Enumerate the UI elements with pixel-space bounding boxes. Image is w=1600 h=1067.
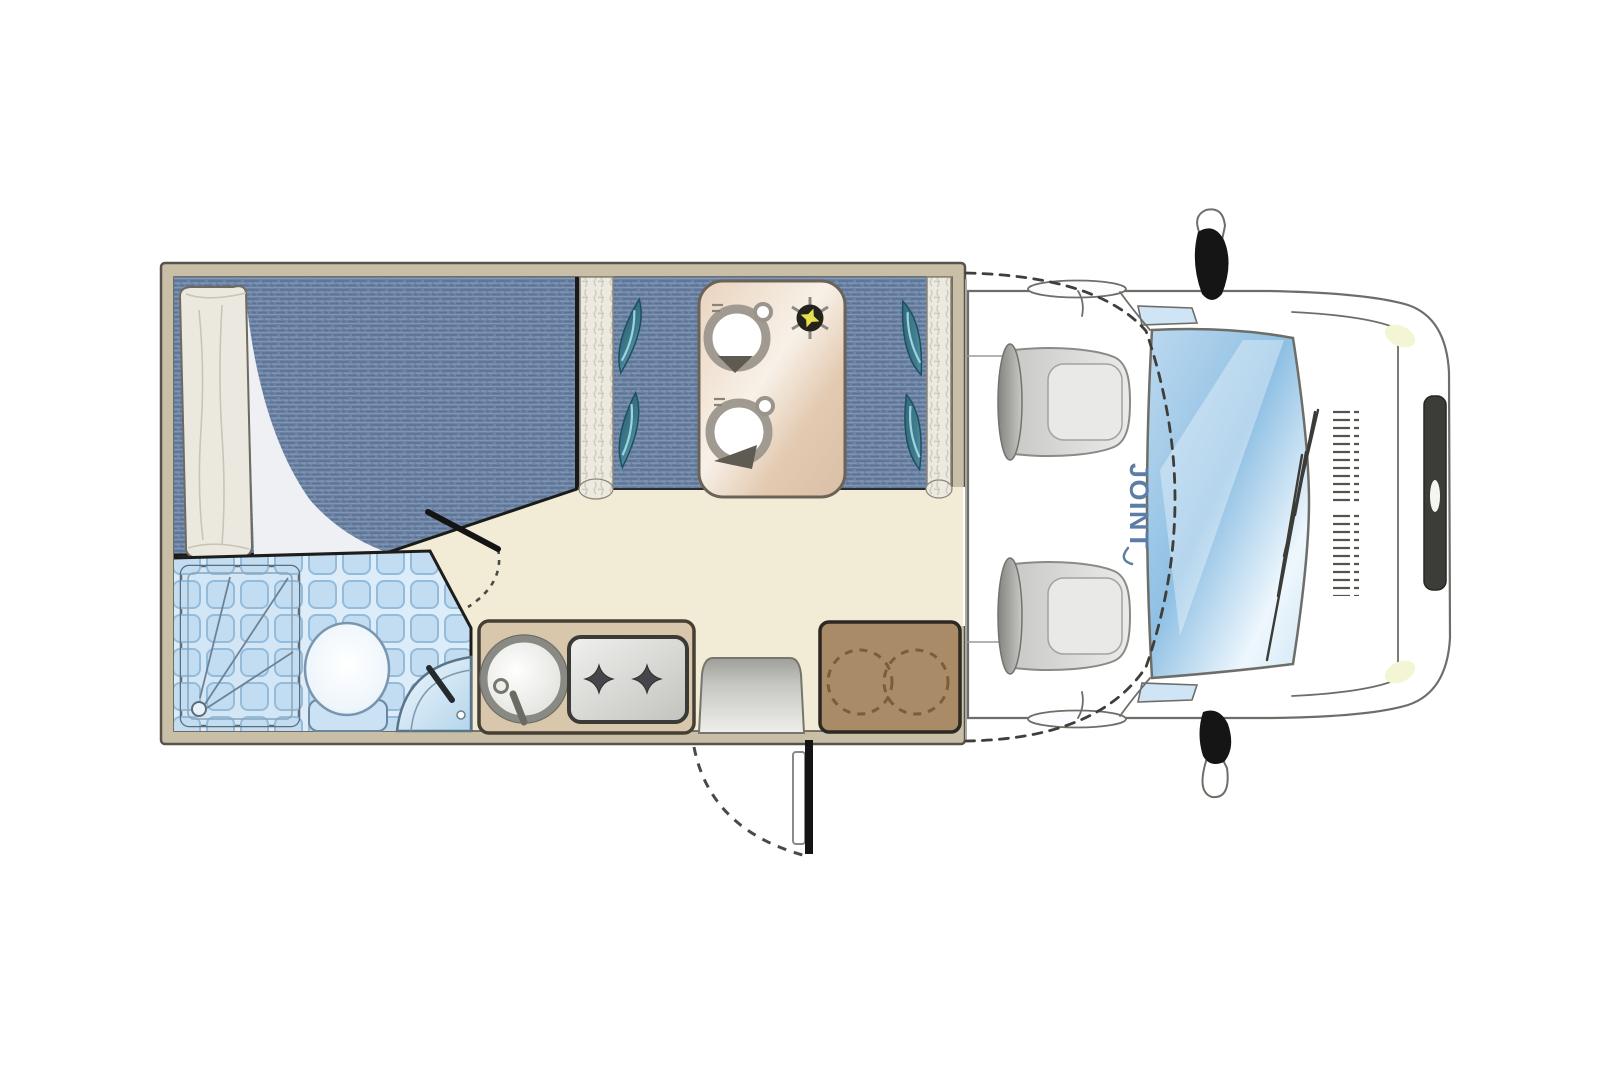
- side-mirror-top: [1195, 209, 1229, 300]
- sink-drain: [495, 680, 508, 693]
- table-peg-bottom: [757, 398, 773, 414]
- cabinet-body: [820, 622, 960, 732]
- backrest-left-cap: [579, 479, 613, 499]
- entry-door-leaf: [805, 740, 813, 854]
- motorhome-floorplan: JOINT: [0, 0, 1600, 1067]
- seat-backrest: [998, 558, 1022, 674]
- brand-label: JOINT: [1124, 463, 1154, 550]
- floorplan-page: JOINT: [0, 0, 1600, 1067]
- hood-vent-top: [1333, 408, 1359, 504]
- quarter-window-top: [1138, 306, 1197, 325]
- brand-logo: JOINT: [1124, 463, 1154, 564]
- seat-backrest: [998, 344, 1022, 460]
- shower-tray: [181, 566, 299, 726]
- side-window-bottom: [1028, 711, 1126, 728]
- backrest-right: [927, 277, 951, 487]
- cab: JOINT: [966, 209, 1450, 797]
- entry-door-panel: [793, 752, 805, 844]
- seat-inner: [1048, 364, 1122, 440]
- shower-drain: [192, 702, 206, 716]
- backrest-right-cap: [926, 480, 952, 498]
- windshield: [1147, 329, 1318, 678]
- storage-cabinet: [820, 622, 960, 732]
- table-peg-top: [755, 304, 771, 320]
- passage-floor: [950, 487, 963, 626]
- dinette-table: [699, 281, 845, 497]
- toilet: [305, 623, 389, 731]
- round-sink: [484, 639, 564, 719]
- kitchen-counter: [479, 621, 694, 733]
- quarter-window-bottom: [1138, 683, 1197, 702]
- hood-vent-bottom: [1333, 512, 1359, 596]
- grille-slit: [1430, 480, 1440, 512]
- passenger-seat: [998, 558, 1130, 674]
- basin-drain: [457, 711, 465, 719]
- entry-step: [699, 658, 804, 733]
- seat-inner: [1048, 578, 1122, 654]
- duvet-roll: [180, 286, 252, 558]
- side-mirror-bottom: [1200, 711, 1232, 798]
- side-window-top: [1028, 281, 1126, 298]
- toilet-bowl: [305, 623, 389, 715]
- driver-seat: [998, 344, 1130, 460]
- backrest-left: [580, 277, 613, 487]
